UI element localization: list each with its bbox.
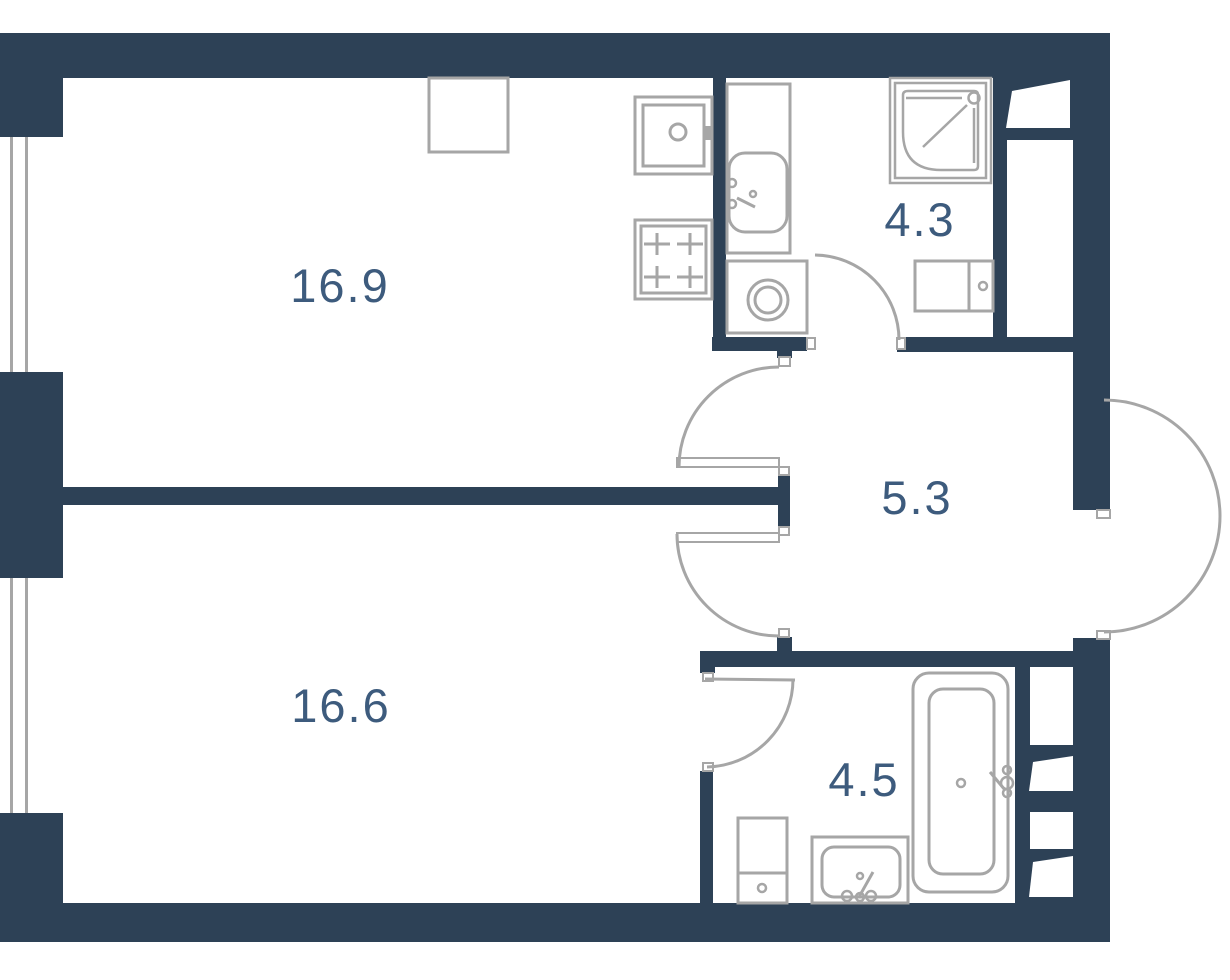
floor-plan: 16.9 4.3 5.3 16.6 4.5 [0, 0, 1230, 980]
door-frame-bath-top-left [807, 338, 815, 349]
door-frame-kitchen-bottom [779, 467, 789, 475]
door-frame-kitchen-top [779, 357, 790, 366]
wall-right-upper [1073, 78, 1110, 510]
toilet-top-button [979, 282, 987, 290]
door-arc-bedroom [677, 534, 779, 636]
toilet-top-body [915, 261, 993, 311]
door-frame-bedroom-top [779, 527, 789, 535]
door-leaf-kitchen [677, 458, 779, 467]
room-label-hallway: 5.3 [857, 472, 977, 524]
wall-bath-top-bottom [897, 337, 1078, 352]
vent-notch-bottom [1029, 856, 1073, 897]
bathtub-basin [929, 689, 994, 874]
window-upper-inner-line [25, 137, 28, 372]
door-frame-entrance-top [1097, 510, 1110, 518]
wall-left-top [0, 33, 63, 137]
bathtub-drain [957, 779, 965, 787]
toilet-bottom-button [758, 884, 766, 892]
nook-counter-sink [727, 84, 790, 253]
door-arc-entrance [1104, 400, 1220, 632]
door-arc-bathroom-bottom [707, 679, 793, 767]
nook-sink-lever [737, 198, 755, 207]
wall-bath-bottom-left [700, 771, 713, 903]
kitchen-sink-drain [670, 124, 686, 140]
toilet-top [915, 261, 993, 311]
stove-burners [644, 233, 703, 288]
door-arc-bathroom-top [815, 255, 899, 340]
window-lower-inner-line [25, 578, 28, 813]
kitchen-fixtures [429, 78, 807, 333]
wall-hall-bottom [700, 651, 1073, 667]
toilet-bottom [738, 818, 787, 903]
kitchen-sink-unit [635, 97, 713, 174]
stove-outline [635, 220, 712, 299]
wall-left-bottom [0, 813, 63, 942]
kitchen-sink-faucet [704, 126, 713, 140]
room-label-bathroom-top: 4.3 [860, 194, 980, 246]
sink-bottom [812, 837, 908, 903]
shower [890, 78, 991, 183]
wall-bottom [62, 903, 1110, 942]
wall-bath-top-right [993, 78, 1007, 352]
room-label-bedroom: 16.6 [281, 680, 401, 732]
floor-plan-drawing [0, 0, 1230, 980]
nook-sink-tap-dot-2 [728, 200, 736, 208]
wall-stub-middle [778, 475, 790, 527]
door-leaf-bedroom [677, 533, 779, 542]
room-label-bathroom-bottom: 4.5 [804, 754, 924, 806]
sink-bottom-drain [857, 873, 863, 879]
window-upper-outer-line [10, 137, 13, 372]
wall-left-pier [0, 372, 63, 578]
wall-top [0, 33, 1110, 78]
stove-top [641, 226, 706, 293]
stove [635, 220, 712, 299]
nook-sink-basin [729, 153, 787, 232]
washing-machine-door-inner [755, 287, 781, 313]
wall-bath-bottom-right [1015, 667, 1030, 903]
washing-machine-body [727, 261, 807, 333]
wall-hall-bottom-stub [700, 651, 715, 673]
wall-right-lower [1073, 638, 1110, 903]
room-label-living-kitchen: 16.9 [280, 260, 400, 312]
kitchen-cabinet [429, 78, 508, 152]
kitchen-sink-basin [643, 105, 704, 166]
wall-kitchen-divider [713, 78, 726, 349]
washing-machine [727, 261, 807, 333]
window-lower-outer-line [10, 578, 13, 813]
toilet-bottom-body [738, 818, 787, 903]
wall-nook-bottom [712, 337, 807, 351]
shower-door-diagonal [923, 105, 967, 147]
kitchen-sink-counter [635, 97, 712, 174]
door-arc-kitchen [679, 367, 779, 467]
wall-stub-bottom [777, 637, 792, 652]
bathtub [913, 673, 1013, 892]
wall-room-divider [57, 487, 778, 505]
door-leaf-bathroom-bottom [705, 679, 795, 680]
door-frames [703, 338, 1110, 771]
nook-sink-tap-dot-3 [750, 191, 756, 197]
door-frame-bedroom-bottom [779, 629, 789, 637]
nook-sink-tap-dot-1 [728, 179, 736, 187]
